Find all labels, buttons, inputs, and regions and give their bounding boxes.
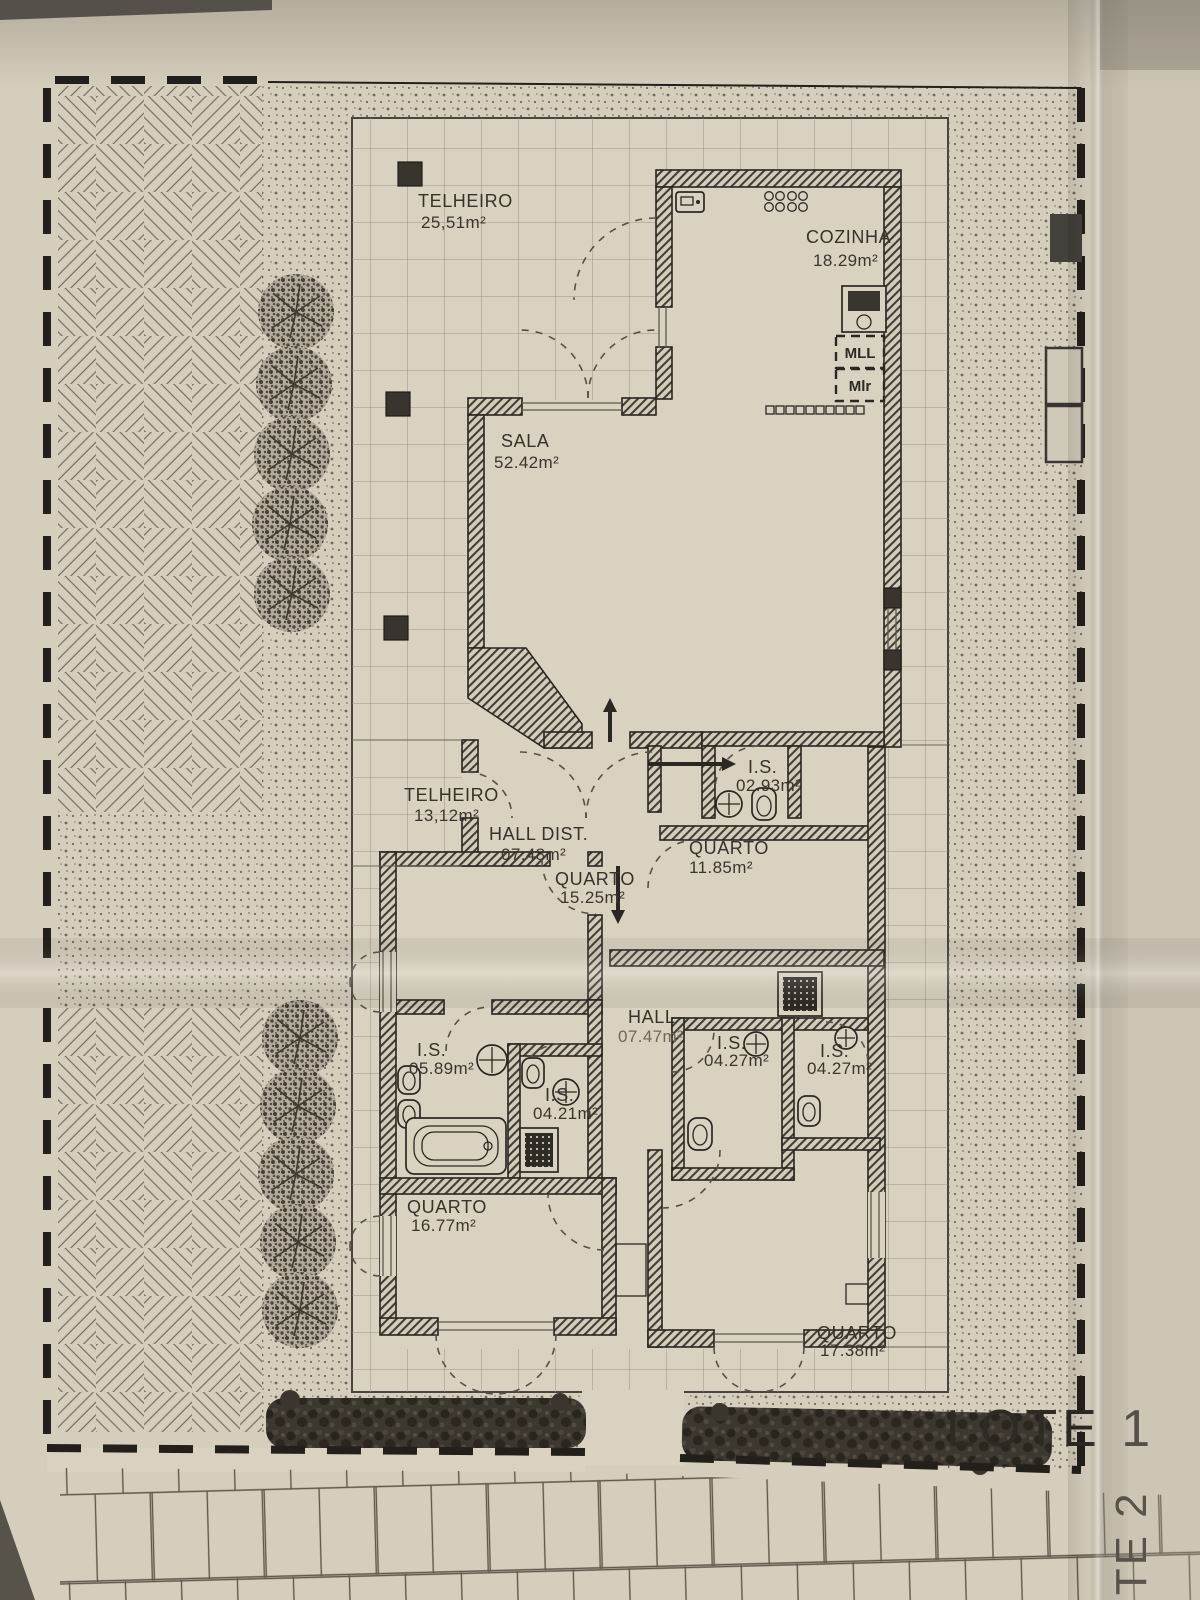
room-area-quarto-1738: 17.38m² bbox=[820, 1341, 885, 1360]
room-label-telheiro-2: TELHEIRO bbox=[404, 785, 499, 805]
tree-row-lower bbox=[258, 1000, 338, 1348]
room-label-is-0427-right: I.S. bbox=[820, 1041, 849, 1061]
kitchen-sink-icon bbox=[842, 286, 886, 332]
room-label-quarto-1185: QUARTO bbox=[689, 838, 769, 858]
toilet-icon bbox=[522, 1058, 544, 1088]
room-area-hall: 07.47m² bbox=[618, 1027, 683, 1046]
shower-icon bbox=[520, 1128, 558, 1172]
room-label-sala: SALA bbox=[501, 431, 549, 451]
washer-label: Mlr bbox=[849, 378, 872, 395]
room-area-is-0589: 05.89m² bbox=[409, 1059, 474, 1078]
room-area-is-0421: 04.21m² bbox=[533, 1104, 598, 1123]
floor-plan-drawing: TELHEIRO 25,51m² COZINHA 18.29m² SALA 52… bbox=[0, 0, 1200, 1600]
floor-plan-photo: TELHEIRO 25,51m² COZINHA 18.29m² SALA 52… bbox=[0, 0, 1200, 1600]
room-label-quarto-1677: QUARTO bbox=[407, 1197, 487, 1217]
bathtub-icon bbox=[406, 1118, 506, 1174]
toilet-icon bbox=[688, 1118, 712, 1150]
room-label-hall: HALL bbox=[628, 1007, 675, 1027]
room-label-is-0589: I.S. bbox=[417, 1040, 446, 1060]
dishwasher-label: MLL bbox=[845, 345, 876, 362]
room-area-is-0293: 02.93m² bbox=[736, 776, 801, 795]
room-label-is-0421: I.S. bbox=[545, 1085, 574, 1105]
room-label-cozinha: COZINHA bbox=[806, 227, 891, 247]
toilet-icon bbox=[798, 1096, 820, 1126]
room-area-is-0427-right: 04.27m² bbox=[807, 1059, 872, 1078]
room-label-quarto-1738: QUARTO bbox=[817, 1323, 897, 1343]
room-area-telheiro-2: 13,12m² bbox=[414, 806, 479, 825]
room-label-is-0293: I.S. bbox=[748, 757, 777, 777]
left-paving bbox=[58, 86, 262, 1432]
room-area-hall-dist: 07.48m² bbox=[501, 845, 566, 864]
room-area-quarto-1185: 11.85m² bbox=[689, 858, 753, 877]
room-area-sala: 52.42m² bbox=[494, 453, 559, 472]
tree-row-upper bbox=[252, 274, 334, 632]
room-area-quarto-1677: 16.77m² bbox=[411, 1216, 476, 1235]
room-label-hall-dist: HALL DIST. bbox=[489, 824, 588, 844]
room-area-cozinha: 18.29m² bbox=[813, 251, 878, 270]
room-area-is-0427-left: 04.27m² bbox=[704, 1051, 769, 1070]
room-area-telheiro-1: 25,51m² bbox=[421, 213, 486, 232]
water-heater-icon bbox=[676, 192, 704, 212]
room-label-is-0427-left: I.S. bbox=[717, 1033, 746, 1053]
room-area-quarto-1525: 15.25m² bbox=[560, 888, 625, 907]
driveway-gap bbox=[582, 1390, 684, 1466]
room-label-telheiro-1: TELHEIRO bbox=[418, 191, 513, 211]
room-label-quarto-1525: QUARTO bbox=[555, 869, 635, 889]
